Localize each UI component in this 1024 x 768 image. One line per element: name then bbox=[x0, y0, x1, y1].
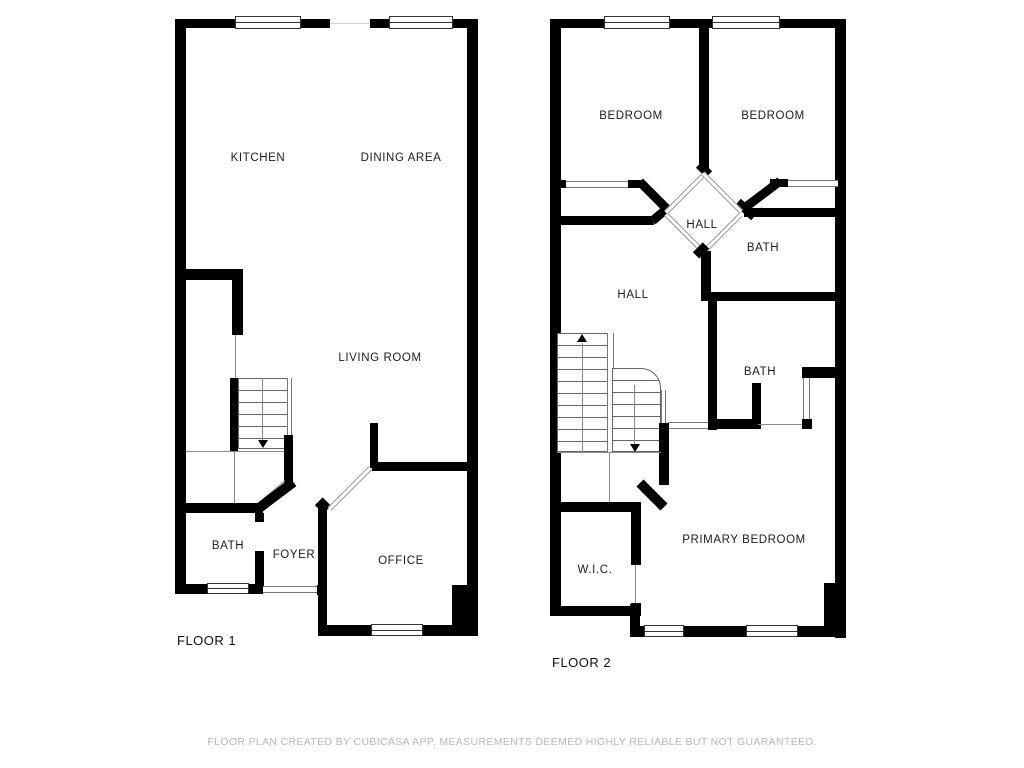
landing-line bbox=[609, 452, 610, 502]
floor1-title: FLOOR 1 bbox=[177, 633, 236, 648]
stairs-center-line bbox=[634, 385, 635, 444]
landing-line bbox=[234, 452, 235, 503]
window bbox=[712, 16, 780, 29]
wall bbox=[802, 367, 846, 378]
landing-line bbox=[186, 451, 284, 452]
wall bbox=[230, 378, 238, 452]
wall-gap-line bbox=[330, 23, 370, 24]
stairs-center-line bbox=[262, 378, 263, 440]
window bbox=[371, 624, 423, 636]
room-label-kitchen: KITCHEN bbox=[231, 152, 286, 164]
room-label-bedroom-right: BEDROOM bbox=[741, 110, 805, 122]
wall bbox=[659, 423, 669, 485]
wall bbox=[284, 435, 293, 483]
window bbox=[604, 16, 670, 29]
wall bbox=[550, 502, 636, 512]
stairs-down-arrow bbox=[630, 444, 640, 452]
wall bbox=[631, 502, 641, 565]
wall bbox=[467, 19, 478, 635]
shower-opening bbox=[803, 378, 810, 419]
wall bbox=[744, 208, 846, 217]
wall bbox=[372, 462, 478, 471]
wall bbox=[752, 383, 761, 429]
door-opening-line bbox=[758, 424, 802, 425]
stairs-center-line bbox=[582, 343, 583, 452]
wall bbox=[255, 551, 264, 587]
room-label-office: OFFICE bbox=[378, 555, 424, 567]
wall bbox=[255, 513, 264, 522]
stairs-up-arrow bbox=[577, 334, 587, 342]
stair-railing bbox=[661, 390, 666, 423]
closet-opening-line bbox=[235, 335, 236, 378]
wall bbox=[550, 19, 846, 28]
wall bbox=[838, 179, 846, 187]
door-swing bbox=[701, 172, 743, 214]
room-label-dining: DINING AREA bbox=[361, 152, 442, 164]
door-opening bbox=[788, 180, 838, 187]
window bbox=[746, 625, 798, 637]
wall bbox=[699, 28, 709, 169]
wall bbox=[550, 606, 636, 616]
wall bbox=[452, 585, 478, 632]
floor-plan: KITCHEN DINING AREA LIVING ROOM BATH FOY… bbox=[0, 0, 1024, 768]
wall bbox=[824, 583, 846, 636]
room-label-hall: HALL bbox=[617, 289, 648, 301]
window bbox=[207, 583, 249, 594]
door-opening bbox=[566, 181, 628, 188]
stairs-down-arrow bbox=[258, 440, 268, 448]
wall bbox=[550, 19, 561, 616]
stairs-floor2-down bbox=[612, 368, 661, 452]
window bbox=[389, 16, 453, 29]
entry-door-opening bbox=[263, 586, 317, 593]
door-swing bbox=[328, 466, 373, 511]
room-label-wic: W.I.C. bbox=[578, 564, 613, 576]
door-opening-line bbox=[635, 565, 636, 605]
room-label-bath-f1: BATH bbox=[212, 540, 244, 552]
wall bbox=[550, 180, 566, 188]
room-label-bath-lower: BATH bbox=[744, 366, 776, 378]
wall bbox=[708, 419, 758, 429]
window bbox=[235, 16, 301, 29]
wall bbox=[835, 19, 846, 638]
wall bbox=[318, 506, 327, 635]
floor2-title: FLOOR 2 bbox=[552, 655, 611, 670]
window bbox=[644, 625, 684, 637]
room-label-bedroom-left: BEDROOM bbox=[599, 110, 663, 122]
wall bbox=[175, 503, 263, 513]
stairs-floor1 bbox=[238, 378, 288, 449]
room-label-foyer: FOYER bbox=[273, 549, 316, 561]
room-label-living: LIVING ROOM bbox=[338, 352, 421, 364]
disclaimer-text: FLOOR PLAN CREATED BY CUBICASA APP. MEAS… bbox=[0, 736, 1024, 748]
wall bbox=[232, 269, 243, 335]
wall bbox=[802, 419, 812, 429]
room-label-bath-upper: BATH bbox=[747, 242, 779, 254]
door-swing bbox=[664, 173, 706, 215]
wall bbox=[708, 292, 717, 430]
wall bbox=[550, 216, 654, 225]
room-label-primary: PRIMARY BEDROOM bbox=[682, 534, 806, 546]
stair-railing bbox=[287, 378, 292, 435]
room-label-hall-upper: HALL bbox=[686, 219, 717, 231]
wall bbox=[708, 292, 846, 301]
door-opening bbox=[668, 422, 708, 429]
